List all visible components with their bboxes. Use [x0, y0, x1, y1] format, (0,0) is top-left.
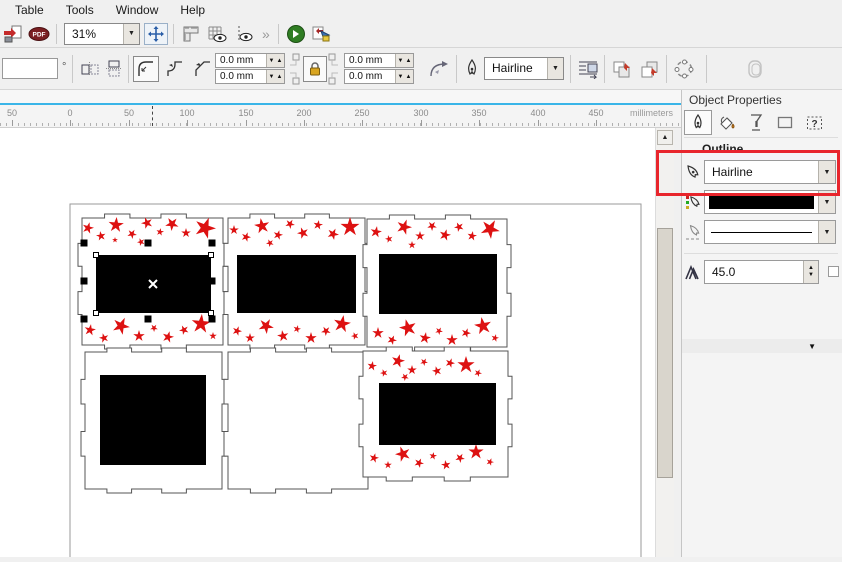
drawing-svg — [0, 128, 655, 557]
show-rulers-icon[interactable] — [179, 23, 203, 45]
panel-outline[interactable] — [224, 348, 372, 493]
chamfered-corner-button[interactable] — [190, 56, 216, 82]
mirror-horizontal-icon[interactable] — [78, 57, 102, 81]
spinner-arrows[interactable]: ▼▲ — [266, 54, 284, 67]
menu-tools[interactable]: Tools — [55, 1, 105, 19]
miter-limit-value: 45.0 — [705, 261, 803, 283]
ruler-tick — [479, 120, 480, 126]
propbar-separator — [72, 55, 73, 83]
menu-window[interactable]: Window — [105, 1, 170, 19]
wrap-text-icon[interactable] — [576, 57, 600, 81]
lock-ratio-button[interactable] — [303, 56, 327, 82]
ruler-tick — [362, 120, 363, 126]
spinner-arrows[interactable]: ▼▲ — [395, 70, 413, 83]
outline-section-title: Outline — [702, 142, 743, 156]
ruler-tick — [187, 120, 188, 126]
docker-outline-width-combo[interactable]: Hairline ▼ — [704, 160, 836, 184]
expand-arrow-icon: ▼ — [808, 342, 816, 351]
miter-limit-field[interactable]: 45.0 ▲▼ — [704, 260, 819, 284]
selection-handle[interactable] — [209, 240, 216, 247]
outline-style-pen-icon — [684, 223, 702, 242]
cut-panel-4[interactable] — [81, 348, 226, 493]
toolbar-overflow-chevron[interactable]: » — [256, 26, 274, 42]
ruler-label: 450 — [588, 108, 603, 118]
zoom-level-value: 31% — [65, 24, 123, 44]
ruler-tick — [596, 120, 597, 126]
ruler-label: 50 — [124, 108, 134, 118]
spinner-arrows[interactable]: ▼▲ — [395, 54, 413, 67]
coreldraw-window: Table Tools Window Help PDF 31% ▼ » — [0, 0, 842, 557]
outline-style-combo[interactable]: ▼ — [704, 220, 836, 244]
cut-panel-6[interactable] — [359, 347, 512, 481]
tab-transparency-icon[interactable] — [742, 110, 770, 135]
tab-summary-icon[interactable]: ? — [800, 110, 828, 135]
ruler-label: 250 — [354, 108, 369, 118]
outline-width-row: Hairline ▼ — [684, 160, 836, 184]
propbar-separator — [706, 55, 707, 83]
cut-panel-1[interactable] — [78, 214, 227, 349]
object-node[interactable] — [209, 311, 214, 316]
selection-handle[interactable] — [81, 316, 88, 323]
outline-style-swatch — [711, 232, 812, 233]
docker-separator — [684, 137, 838, 138]
outline-style-row: ▼ — [684, 220, 836, 244]
standard-toolbar: PDF 31% ▼ » — [0, 20, 842, 48]
outline-width-combo[interactable]: Hairline ▼ — [484, 57, 564, 80]
horizontal-ruler[interactable]: millimeters 5005010015020025030035040045… — [0, 103, 681, 128]
ruler-label: 100 — [179, 108, 194, 118]
launch-icon[interactable] — [284, 23, 308, 45]
docker-outline-width-value: Hairline — [705, 161, 818, 183]
ruler-label: 150 — [238, 108, 253, 118]
ruler-tick — [12, 120, 13, 126]
ruler-label: 0 — [67, 108, 72, 118]
corner-radius-field-1[interactable]: 0.0 mm ▼▲ — [215, 53, 285, 68]
cut-panel-2[interactable] — [224, 214, 369, 349]
selection-handle[interactable] — [145, 240, 152, 247]
miter-checkbox[interactable] — [828, 266, 839, 277]
import-icon[interactable] — [1, 23, 25, 45]
miter-limit-row: 45.0 ▲▼ — [684, 260, 819, 284]
ruler-label: 200 — [296, 108, 311, 118]
ruler-tick — [129, 120, 130, 126]
object-node[interactable] — [209, 253, 214, 258]
scrollbar-thumb[interactable] — [657, 228, 673, 478]
corner-radius-value-2: 0.0 mm — [216, 70, 266, 83]
corner-radius-group-2: 0.0 mm ▼▲ 0.0 mm ▼▲ — [344, 53, 414, 85]
to-back-icon[interactable] — [638, 57, 662, 81]
scalloped-corner-button[interactable] — [162, 56, 188, 82]
link-corners-icon — [326, 57, 342, 81]
convert-outline-icon[interactable] — [672, 57, 696, 81]
toolbar-separator — [56, 24, 57, 44]
ruler-label: 350 — [471, 108, 486, 118]
ruler-label: 50 — [7, 108, 17, 118]
ruler-tick — [70, 120, 71, 126]
ruler-tick — [421, 120, 422, 126]
toolbar-separator — [173, 24, 174, 44]
black-rectangle[interactable] — [379, 383, 496, 445]
propbar-separator — [666, 55, 667, 83]
ruler-tick — [538, 120, 539, 126]
degree-label: ° — [62, 61, 66, 73]
tab-frame-icon[interactable] — [771, 110, 799, 135]
zoom-to-page-icon[interactable] — [144, 23, 168, 45]
ruler-label: 400 — [530, 108, 545, 118]
tab-outline-pen-icon[interactable] — [684, 110, 712, 135]
export-html-icon[interactable] — [310, 23, 334, 45]
propbar-separator — [128, 55, 129, 83]
outline-color-pen-icon — [684, 193, 702, 212]
object-properties-docker: Object Properties ? Outline — [682, 90, 842, 557]
miter-limit-icon — [684, 265, 702, 280]
svg-text:PDF: PDF — [33, 31, 46, 38]
outline-color-dropdown[interactable]: ▼ — [818, 191, 835, 213]
property-bar: ° 0.0 mm ▼▲ 0.0 mm ▼▲ — [0, 48, 842, 90]
menu-table[interactable]: Table — [4, 1, 55, 19]
toolbar-separator — [278, 24, 279, 44]
show-grid-icon[interactable] — [205, 23, 229, 45]
ruler-cursor-marker — [152, 106, 153, 126]
ruler-minor-ticks — [0, 123, 681, 126]
zoom-dropdown-button[interactable]: ▼ — [123, 24, 139, 44]
docker-tabs: ? — [684, 110, 828, 135]
ruler-label: 300 — [413, 108, 428, 118]
rotation-angle-field[interactable] — [2, 58, 58, 79]
outline-pen-icon — [684, 163, 702, 182]
selection-handle[interactable] — [145, 316, 152, 323]
menu-bar: Table Tools Window Help — [0, 0, 842, 20]
ruler-tick — [246, 120, 247, 126]
show-guidelines-icon[interactable] — [231, 23, 255, 45]
corner-radius-value-3: 0.0 mm — [345, 54, 395, 67]
to-front-icon[interactable] — [610, 57, 634, 81]
docker-title: Object Properties — [689, 93, 782, 107]
zoom-level-combo[interactable]: 31% ▼ — [64, 23, 140, 45]
miter-limit-spinner[interactable]: ▲▼ — [803, 261, 818, 283]
outline-width-dropdown-button[interactable]: ▼ — [547, 58, 563, 79]
selection-handle[interactable] — [81, 240, 88, 247]
black-rectangle[interactable] — [379, 254, 497, 314]
collapsed-section-bar[interactable]: ▼ — [682, 339, 842, 353]
outline-style-dropdown[interactable]: ▼ — [818, 221, 835, 243]
docker-rule — [684, 253, 838, 254]
outline-width-value: Hairline — [485, 58, 547, 79]
outline-color-swatch — [709, 195, 814, 209]
object-node[interactable] — [94, 253, 99, 258]
round-corner-button[interactable] — [133, 56, 159, 82]
corner-radius-group-1: 0.0 mm ▼▲ 0.0 mm ▼▲ — [215, 53, 285, 85]
propbar-separator — [570, 55, 571, 83]
fillet-chamfer-icon[interactable] — [428, 57, 452, 81]
selection-handle[interactable] — [209, 316, 216, 323]
spinner-arrows[interactable]: ▼▲ — [266, 70, 284, 83]
vertical-scrollbar[interactable]: ▲ — [655, 128, 674, 557]
cut-panel-3[interactable] — [363, 215, 511, 351]
selection-handle[interactable] — [81, 278, 88, 285]
object-node[interactable] — [94, 311, 99, 316]
docker-outline-width-dropdown[interactable]: ▼ — [818, 161, 835, 183]
black-rectangle[interactable] — [100, 375, 206, 465]
corner-radius-field-3[interactable]: 0.0 mm ▼▲ — [344, 53, 414, 68]
outline-color-row: ▼ — [684, 190, 836, 214]
drawing-canvas[interactable] — [0, 128, 655, 557]
cut-panel-5[interactable] — [224, 348, 372, 493]
black-rectangle[interactable] — [237, 255, 356, 313]
propbar-separator — [604, 55, 605, 83]
tab-fill-icon[interactable] — [713, 110, 741, 135]
propbar-separator — [456, 55, 457, 83]
copy-properties-icon — [744, 57, 768, 81]
menu-help[interactable]: Help — [169, 1, 216, 19]
link-corners-icon — [286, 57, 302, 81]
svg-text:?: ? — [811, 119, 817, 130]
corner-radius-field-4[interactable]: 0.0 mm ▼▲ — [344, 69, 414, 84]
publish-pdf-icon[interactable]: PDF — [27, 23, 51, 45]
ruler-tick — [304, 120, 305, 126]
scroll-up-button[interactable]: ▲ — [657, 130, 673, 145]
outline-pen-icon — [460, 57, 484, 81]
corner-radius-field-2[interactable]: 0.0 mm ▼▲ — [215, 69, 285, 84]
workspace-strip — [0, 90, 681, 103]
selection-handle[interactable] — [209, 278, 216, 285]
corner-radius-value-4: 0.0 mm — [345, 70, 395, 83]
corner-radius-value-1: 0.0 mm — [216, 54, 266, 67]
outline-color-combo[interactable]: ▼ — [704, 190, 836, 214]
mirror-vertical-icon[interactable] — [102, 57, 126, 81]
ruler-unit-label: millimeters — [630, 108, 673, 118]
